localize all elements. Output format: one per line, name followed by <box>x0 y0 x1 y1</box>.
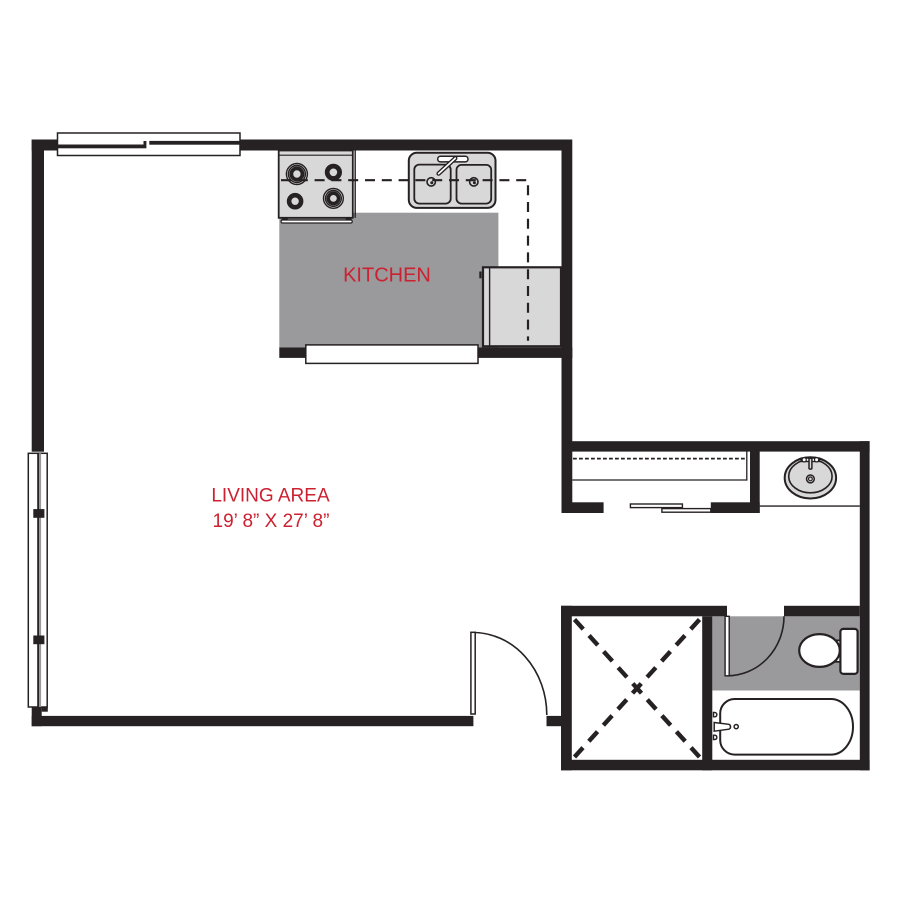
svg-text:19’ 8” X 27’ 8”: 19’ 8” X 27’ 8” <box>213 511 330 532</box>
svg-text:LIVING AREA: LIVING AREA <box>211 485 330 506</box>
svg-text:KITCHEN: KITCHEN <box>343 264 431 286</box>
